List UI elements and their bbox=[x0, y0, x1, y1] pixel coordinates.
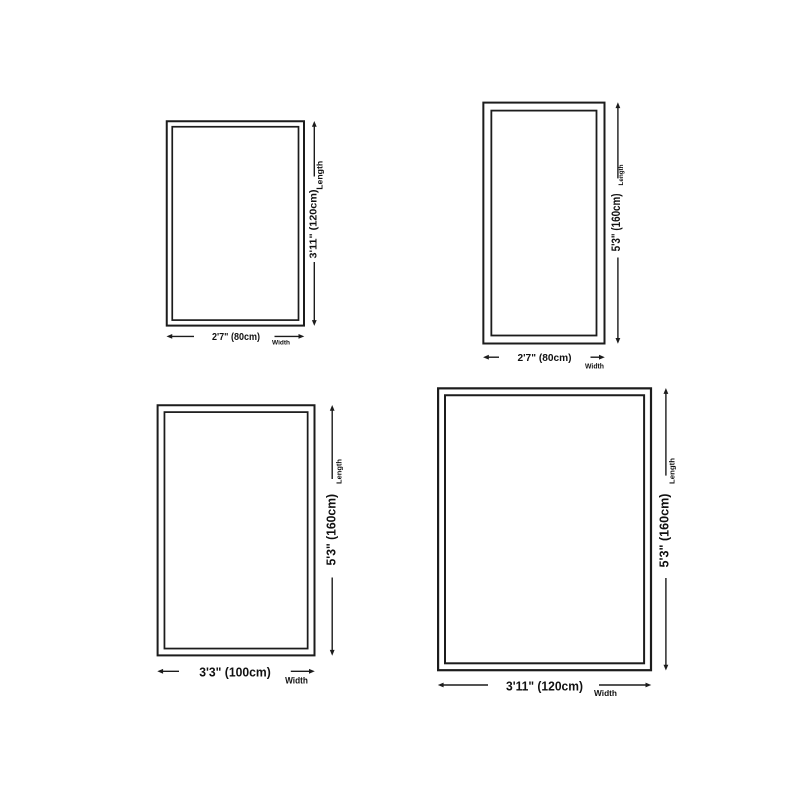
svg-text:5'3" (160cm): 5'3" (160cm) bbox=[324, 494, 339, 566]
svg-text:3'3" (100cm): 3'3" (100cm) bbox=[199, 665, 271, 680]
svg-text:3'11" (120cm): 3'11" (120cm) bbox=[307, 190, 319, 259]
svg-text:3'11" (120cm): 3'11" (120cm) bbox=[506, 678, 583, 693]
svg-text:Length: Length bbox=[668, 458, 677, 484]
svg-text:Width: Width bbox=[585, 363, 604, 370]
svg-text:Length: Length bbox=[618, 164, 625, 185]
svg-text:Width: Width bbox=[272, 339, 290, 346]
svg-text:Length: Length bbox=[335, 459, 344, 484]
svg-text:Width: Width bbox=[285, 675, 308, 685]
svg-text:2'7" (80cm): 2'7" (80cm) bbox=[518, 352, 572, 364]
svg-text:2'7" (80cm): 2'7" (80cm) bbox=[212, 332, 260, 343]
svg-text:Width: Width bbox=[594, 689, 617, 698]
svg-text:5'3" (160cm): 5'3" (160cm) bbox=[656, 494, 671, 568]
svg-text:5'3" (160cm): 5'3" (160cm) bbox=[611, 193, 623, 251]
svg-text:Length: Length bbox=[315, 161, 324, 190]
